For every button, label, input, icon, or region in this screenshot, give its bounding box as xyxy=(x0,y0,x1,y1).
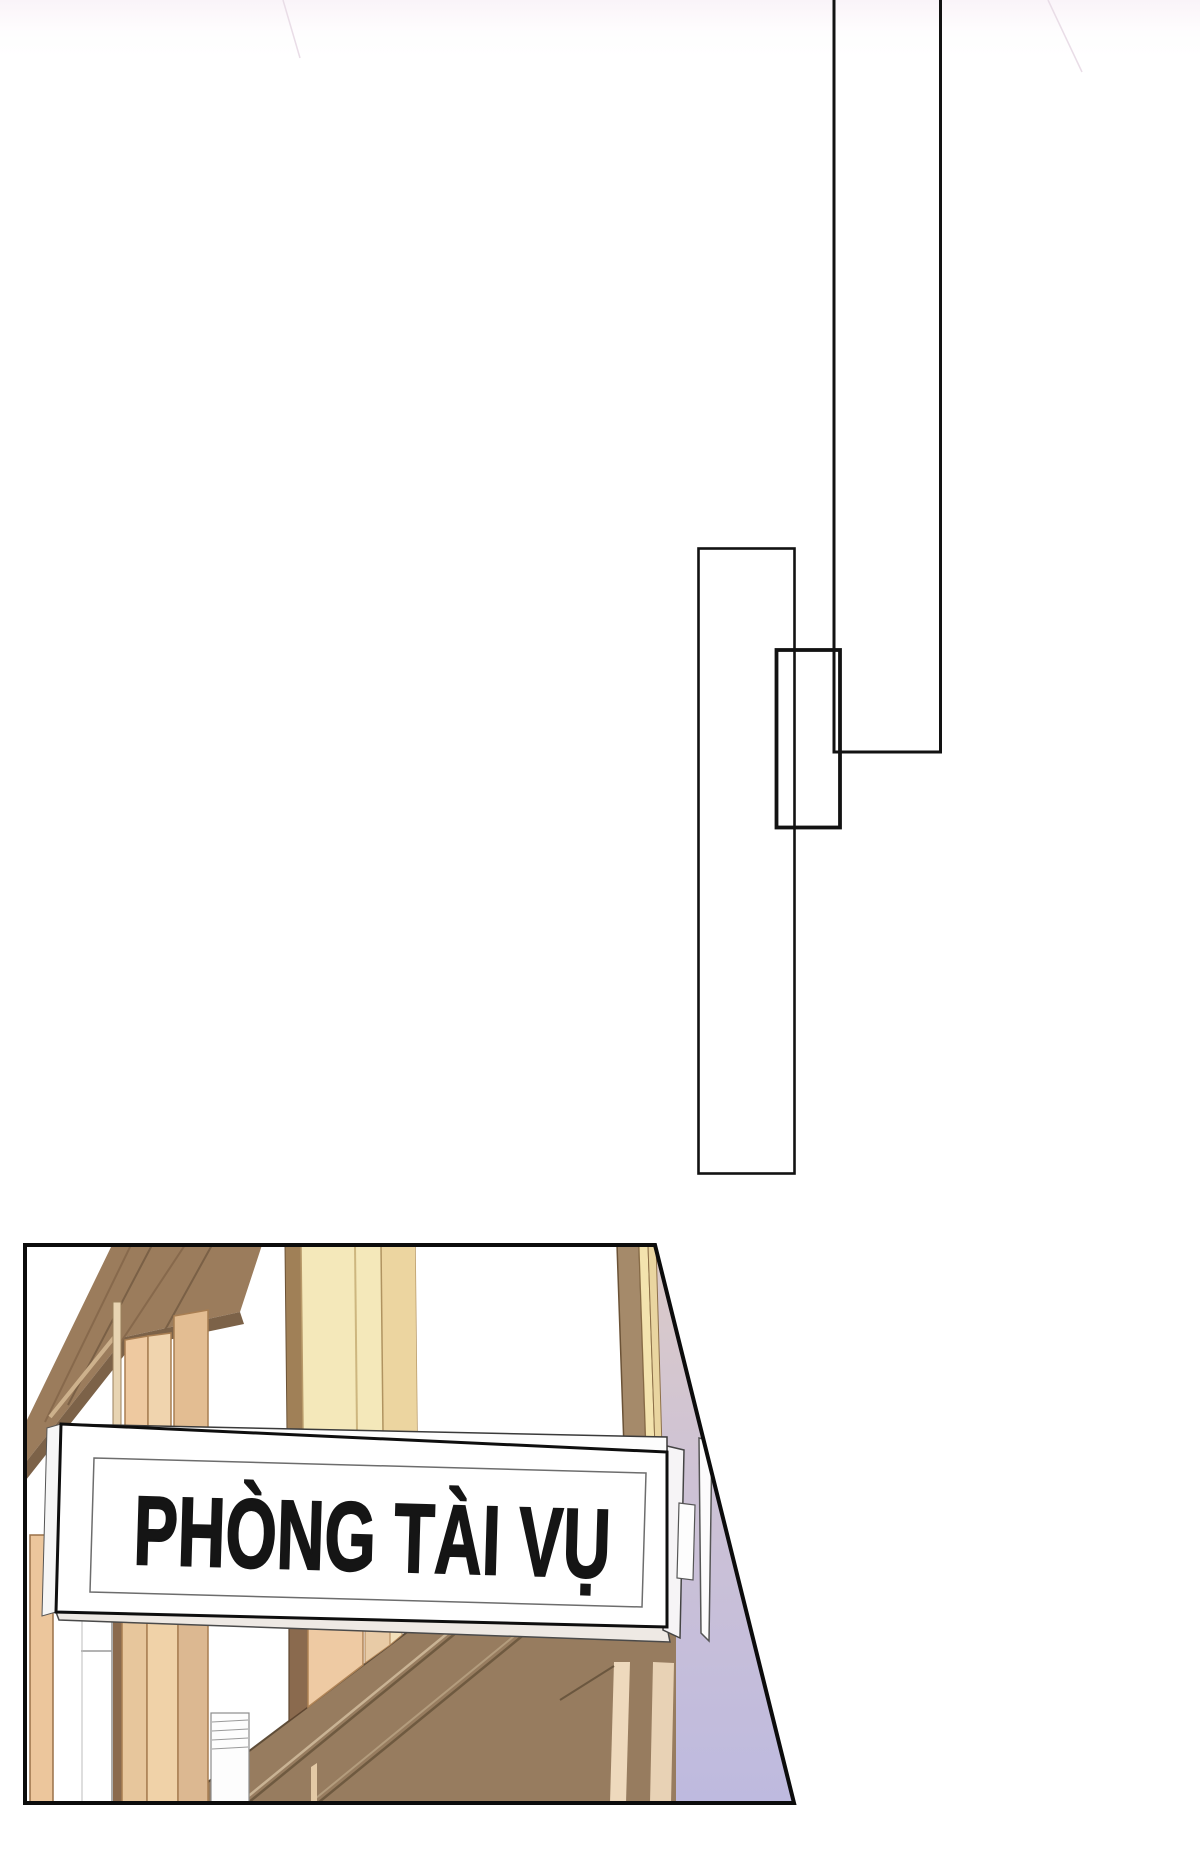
svg-text:PHÒNG TÀI VỤ: PHÒNG TÀI VỤ xyxy=(132,1475,612,1599)
